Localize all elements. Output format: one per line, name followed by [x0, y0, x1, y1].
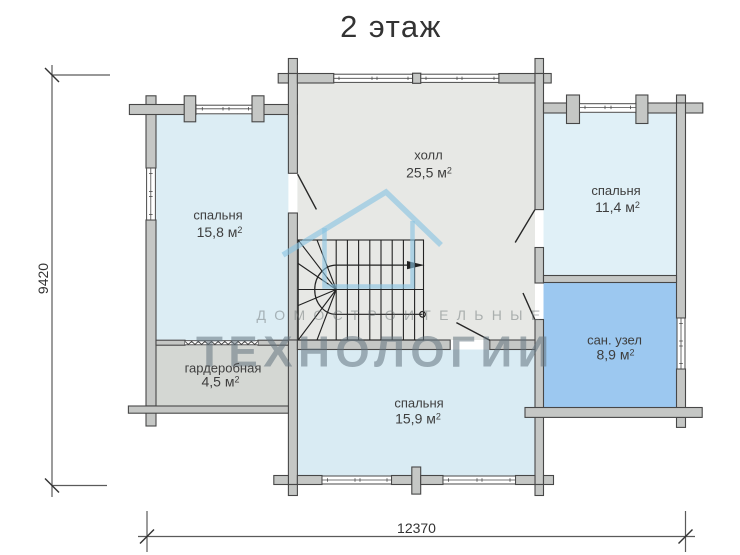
svg-text:15,9 м2: 15,9 м2 — [395, 411, 441, 427]
svg-text:8,9 м2: 8,9 м2 — [597, 347, 635, 363]
svg-text:спальня: спальня — [193, 208, 242, 223]
svg-text:4,5 м2: 4,5 м2 — [202, 374, 240, 390]
svg-text:спальня: спальня — [394, 396, 443, 411]
svg-text:11,4 м2: 11,4 м2 — [595, 199, 640, 215]
svg-text:15,8 м2: 15,8 м2 — [197, 224, 243, 240]
svg-text:25,5 м2: 25,5 м2 — [406, 165, 452, 181]
svg-text:холл: холл — [414, 148, 442, 163]
svg-text:2 этаж: 2 этаж — [340, 9, 442, 44]
svg-text:9420: 9420 — [35, 263, 51, 294]
svg-text:спальня: спальня — [591, 183, 640, 198]
svg-text:сан. узел: сан. узел — [587, 333, 642, 348]
svg-text:ДОМОСТРОИТЕЛЬНЫЕ: ДОМОСТРОИТЕЛЬНЫЕ — [257, 307, 549, 323]
svg-text:12370: 12370 — [397, 520, 436, 536]
